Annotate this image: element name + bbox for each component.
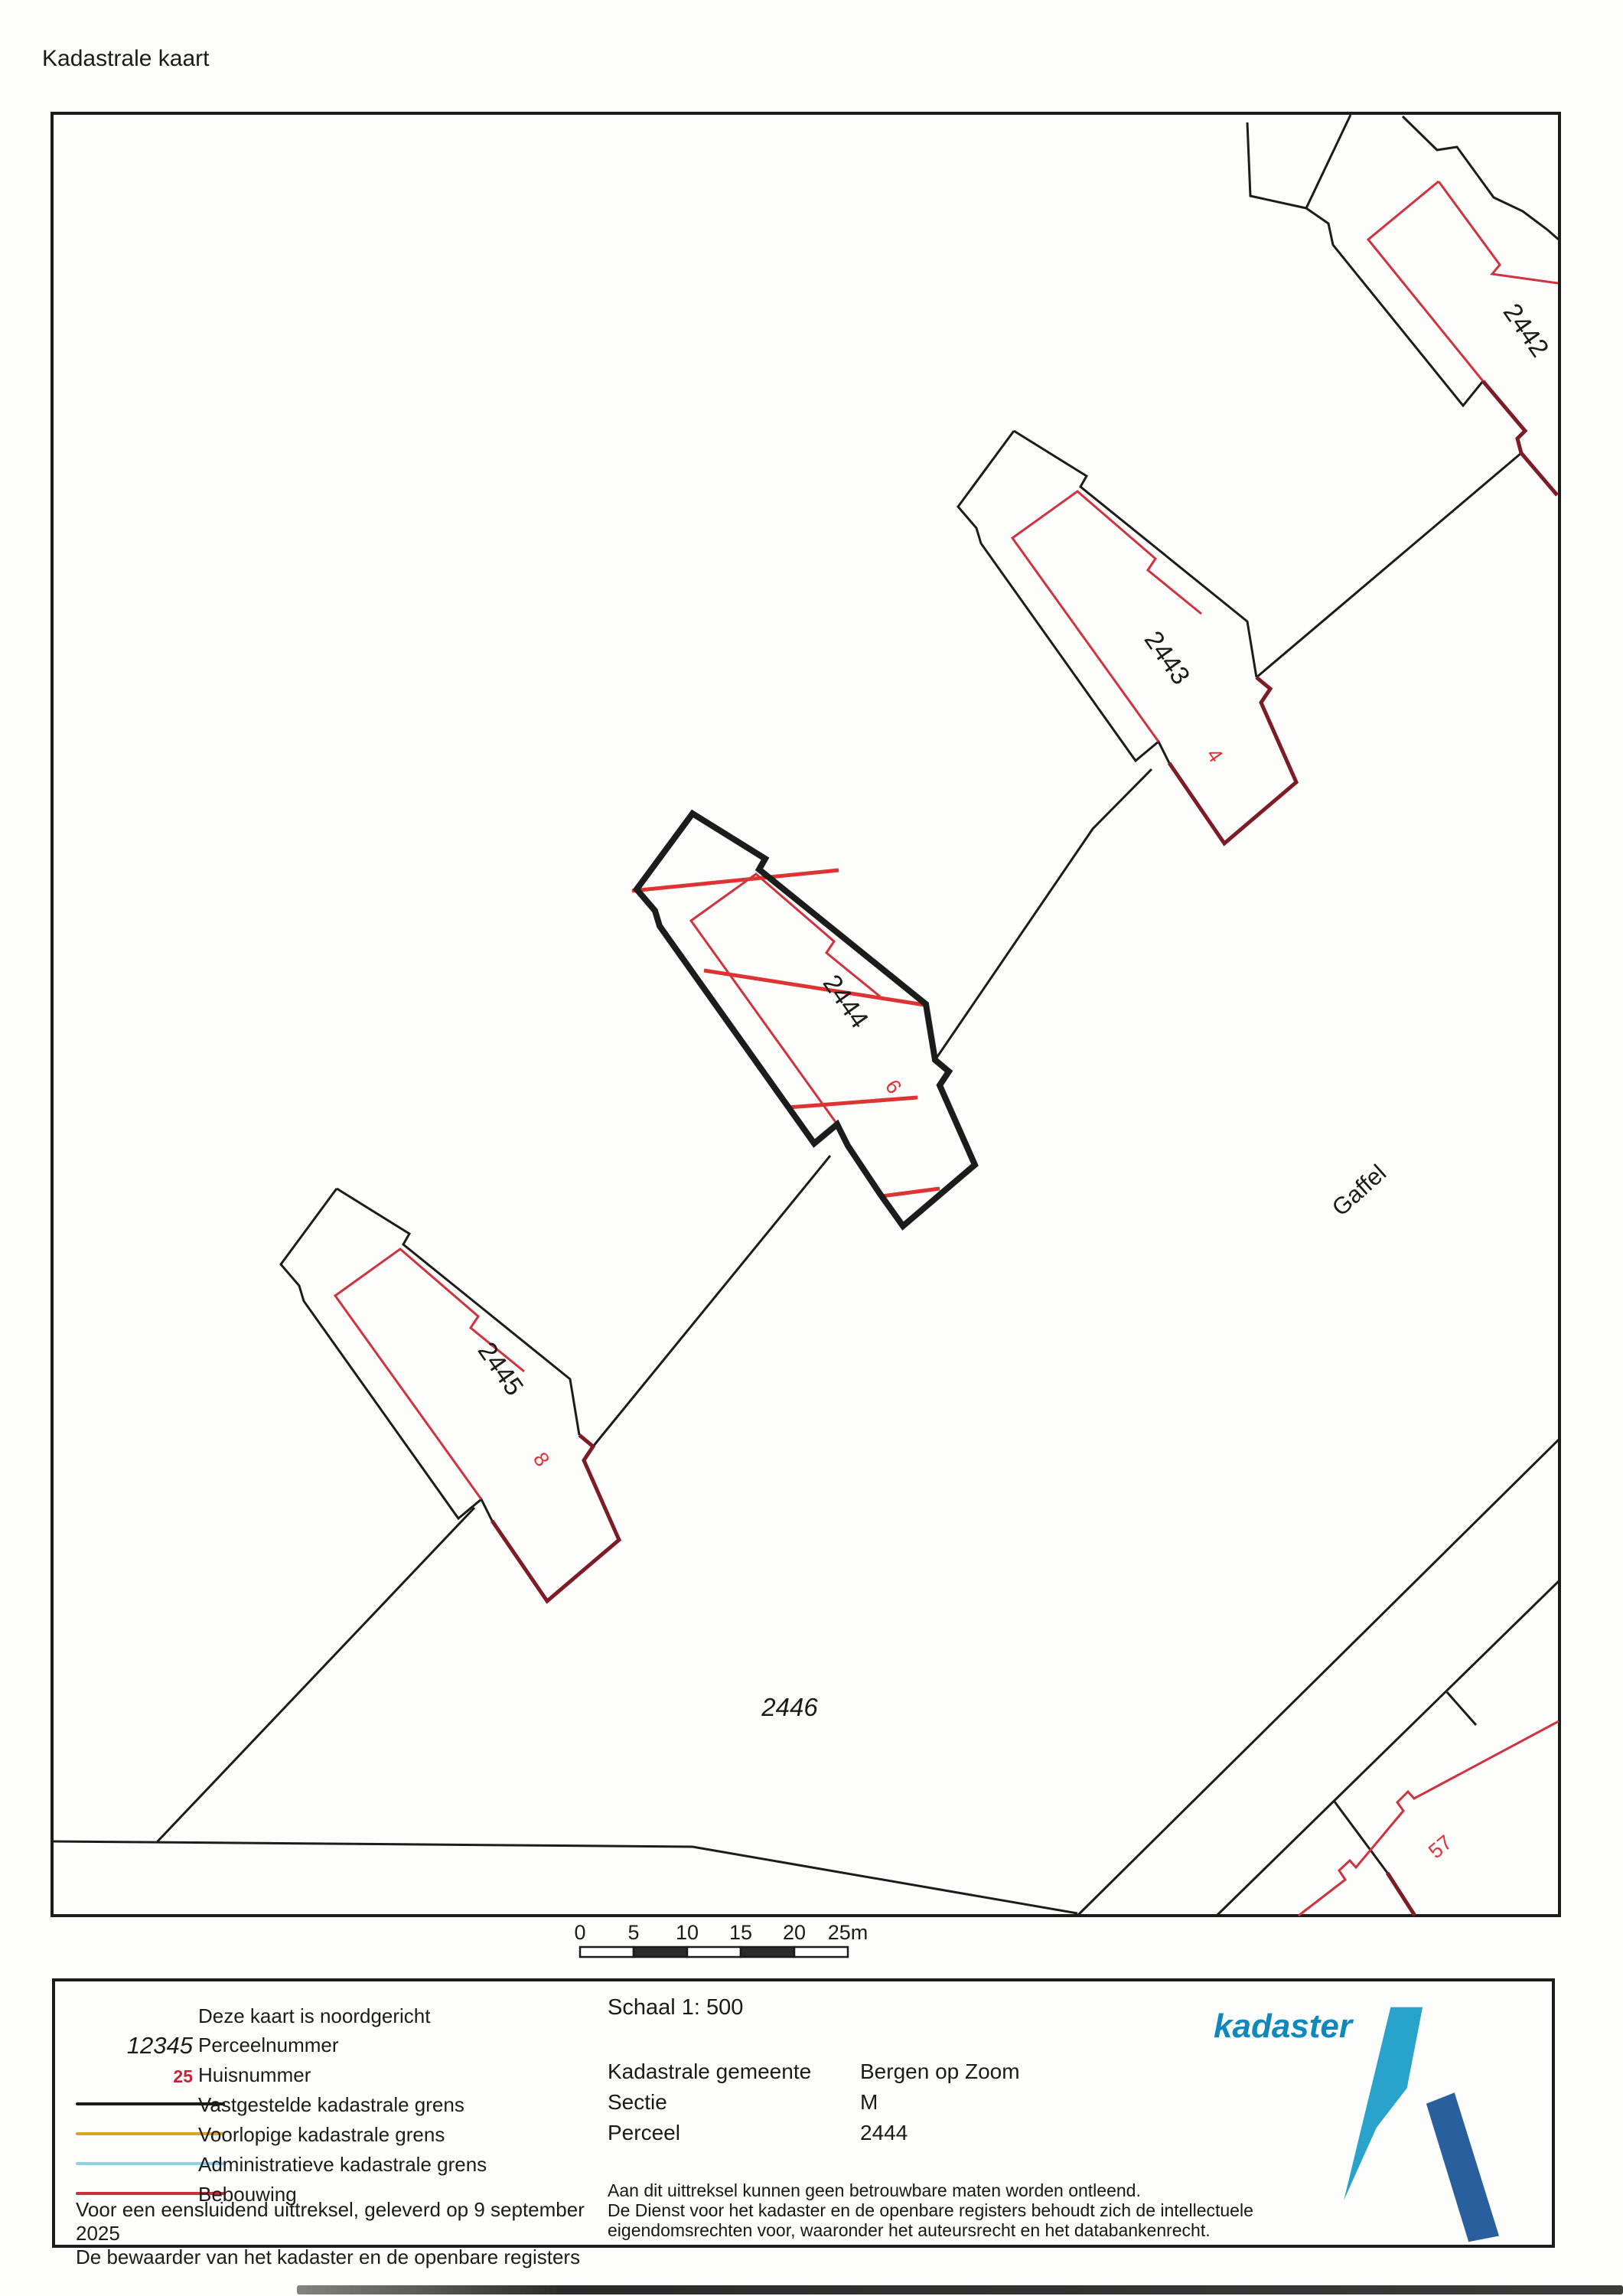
map-details: Schaal 1: 500 Kadastrale gemeenteBergen …: [608, 1981, 1266, 2245]
building-line-3: [882, 1189, 940, 1196]
scalebar-tick-5: 5: [627, 1921, 639, 1944]
legend-item-1: 25Huisnummer: [55, 2062, 591, 2088]
house-number-6: 6: [881, 1075, 906, 1098]
scalebar-segment-2: [687, 1947, 741, 1957]
detail-row-perceel: Perceel2444: [608, 2121, 1266, 2145]
detail-value: Bergen op Zoom: [860, 2060, 1020, 2083]
logo-light-blade: [1344, 2007, 1423, 2200]
disclaimer-line-2: De Dienst voor het kadaster en de openba…: [608, 2200, 1253, 2220]
building-outline-2: [1012, 491, 1201, 742]
house-number-57: 57: [1424, 1831, 1456, 1863]
map-canvas: 2442244324442445244646857Gaffel051015202…: [0, 0, 1623, 2296]
scalebar-tick-10: 10: [676, 1921, 699, 1944]
scalebar-tick-0: 0: [574, 1921, 585, 1944]
parcel-number-2442: 2442: [1498, 298, 1555, 363]
parcel-number-2444: 2444: [817, 970, 875, 1034]
building-outline-1: [1368, 181, 1483, 381]
disclaimer-line-1: Aan dit uittreksel kunnen geen betrouwba…: [608, 2180, 1253, 2200]
kadastrale-kaart-page: Kadastrale kaart 24422443244424452446468…: [0, 0, 1623, 2296]
scalebar-segment-1: [634, 1947, 687, 1957]
detail-value: M: [860, 2090, 878, 2114]
selected-parcel-outline: [637, 814, 975, 1226]
legend-north-note: Deze kaart is noordgericht: [198, 2004, 430, 2028]
street-name-Gaffel: Gaffel: [1327, 1159, 1391, 1221]
detail-label: Kadastrale gemeente: [608, 2060, 860, 2084]
legend-label-0: Perceelnummer: [198, 2033, 339, 2057]
parcel-number-2443: 2443: [1139, 626, 1196, 690]
scale-text: Schaal 1: 500: [608, 1995, 743, 2020]
building-on-boundary-1: [1169, 677, 1296, 843]
issued-line-2: De bewaarder van het kadaster en de open…: [76, 2245, 591, 2269]
logo-dark-blade: [1426, 2092, 1499, 2242]
cadastral-boundary-7: [593, 1156, 830, 1446]
cadastral-boundary-2: [1403, 116, 1559, 240]
cadastral-boundary-6: [935, 769, 1152, 1060]
legend-item-4: Administratieve kadastrale grens: [55, 2151, 591, 2177]
cadastral-boundary-10: [157, 1508, 474, 1842]
legend-label-2: Vastgestelde kadastrale grens: [198, 2093, 464, 2117]
detail-row-sectie: SectieM: [608, 2090, 1266, 2115]
cadastral-boundary-12: [1077, 1439, 1559, 1916]
scalebar-tick-25m: 25m: [828, 1921, 869, 1944]
building-outline-5: [1299, 1721, 1559, 1916]
building-line-2: [788, 1097, 917, 1107]
detail-value: 2444: [860, 2121, 908, 2144]
legend-label-1: Huisnummer: [198, 2063, 311, 2087]
disclaimer: Aan dit uittreksel kunnen geen betrouwba…: [608, 2180, 1253, 2240]
kadaster-logo: kadaster: [1214, 1991, 1520, 2243]
scalebar-segment-0: [580, 1947, 634, 1957]
building-on-boundary-2: [492, 1435, 619, 1601]
scalebar-segment-3: [741, 1947, 794, 1957]
issued-line-1: Voor een eensluidend uittreksel, gelever…: [76, 2198, 591, 2245]
disclaimer-line-3: eigendomsrechten voor, waaronder het aut…: [608, 2220, 1253, 2240]
scalebar-tick-20: 20: [783, 1921, 806, 1944]
cadastral-boundary-0: [1247, 122, 1306, 208]
kadaster-logo-mark: [1328, 1997, 1520, 2249]
scalebar-tick-15: 15: [729, 1921, 752, 1944]
house-number-4: 4: [1202, 744, 1227, 767]
detail-label: Perceel: [608, 2121, 860, 2145]
map-frame: [52, 113, 1559, 1916]
house-number-sample: 25: [173, 2066, 193, 2087]
legend: Deze kaart is noordgericht 12345Perceeln…: [55, 1981, 591, 2245]
cadastral-boundary-3: [1256, 453, 1521, 677]
cadastral-boundary-11: [54, 1841, 1077, 1913]
scan-edge-artifact: [297, 2285, 1623, 2294]
legend-item-0: 12345Perceelnummer: [55, 2032, 591, 2058]
scalebar-segment-4: [794, 1947, 848, 1957]
building-on-boundary-3: [1387, 1873, 1415, 1916]
legend-item-3: Voorlopige kadastrale grens: [55, 2122, 591, 2148]
detail-row-kadastrale-gemeente: Kadastrale gemeenteBergen op Zoom: [608, 2060, 1266, 2084]
legend-item-2: Vastgestelde kadastrale grens: [55, 2092, 591, 2118]
cadastral-boundary-1: [1306, 115, 1483, 406]
legend-label-4: Administratieve kadastrale grens: [198, 2153, 487, 2177]
legend-label-3: Voorlopige kadastrale grens: [198, 2123, 445, 2147]
footer-box: Deze kaart is noordgericht 12345Perceeln…: [52, 1978, 1555, 2248]
cadastral-boundary-14: [1447, 1692, 1476, 1725]
house-number-8: 8: [529, 1448, 554, 1471]
parcel-number-2446: 2446: [761, 1693, 818, 1721]
building-on-boundary-0: [1483, 381, 1557, 495]
building-outline-0: [1439, 181, 1558, 283]
parcel-number-sample: 12345: [127, 2032, 193, 2060]
detail-label: Sectie: [608, 2090, 860, 2115]
issued-note: Voor een eensluidend uittreksel, gelever…: [76, 2198, 591, 2269]
